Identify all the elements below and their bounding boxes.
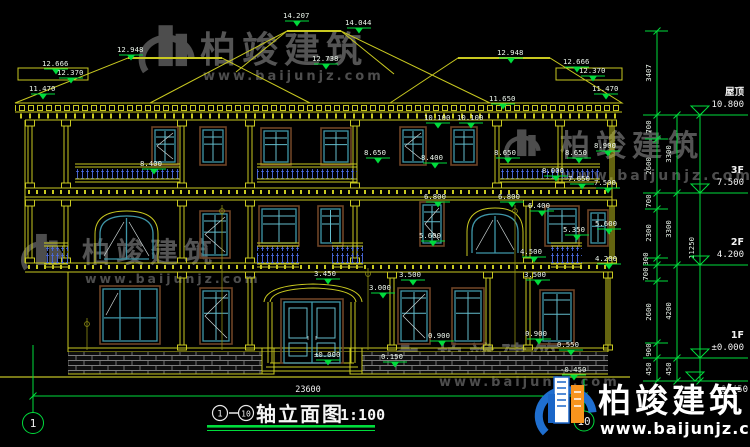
floor-level: 屋顶10.800 bbox=[643, 87, 748, 115]
svg-text:12.738: 12.738 bbox=[312, 54, 338, 63]
svg-text:8.650: 8.650 bbox=[565, 148, 587, 157]
svg-text:11.470: 11.470 bbox=[592, 84, 618, 93]
svg-text:±0.000: ±0.000 bbox=[314, 350, 340, 359]
balustrade bbox=[75, 164, 180, 182]
chain-dim: 450 bbox=[644, 362, 653, 375]
balustrade bbox=[44, 243, 68, 267]
downpipe bbox=[85, 318, 90, 350]
floor-name: 2F bbox=[731, 237, 744, 248]
chain-dim: 2600 bbox=[644, 303, 653, 321]
chain-dim: 450 bbox=[664, 362, 673, 375]
svg-text:12.948: 12.948 bbox=[497, 48, 523, 57]
svg-text:3.000: 3.000 bbox=[369, 283, 391, 292]
balustrade bbox=[257, 164, 357, 182]
svg-text:7.650: 7.650 bbox=[568, 174, 590, 183]
elevation-mark: 5.350 bbox=[563, 225, 589, 241]
svg-text:12.948: 12.948 bbox=[117, 45, 143, 54]
balustrade bbox=[257, 243, 299, 267]
svg-text:14.044: 14.044 bbox=[345, 18, 372, 27]
svg-text:10.100: 10.100 bbox=[424, 113, 450, 122]
total-width-dim: 23600 bbox=[295, 385, 321, 395]
elevation-mark: 10.100 bbox=[424, 113, 450, 129]
entrance bbox=[264, 284, 362, 363]
drawing-title: 1 10 轴立面图 1:100 bbox=[207, 402, 385, 431]
svg-text:6.800: 6.800 bbox=[424, 192, 446, 201]
svg-text:8.900: 8.900 bbox=[594, 141, 616, 150]
window bbox=[452, 288, 484, 344]
window bbox=[318, 206, 343, 246]
svg-text:8.400: 8.400 bbox=[140, 159, 162, 168]
svg-text:0.900: 0.900 bbox=[525, 329, 547, 338]
window bbox=[200, 127, 226, 165]
elevation-mark: 8.400 bbox=[421, 153, 447, 169]
window bbox=[200, 288, 232, 344]
axis-bubble-1: 1 bbox=[23, 413, 44, 434]
column bbox=[246, 120, 255, 188]
chain-dim: 2300 bbox=[644, 224, 653, 242]
column bbox=[246, 200, 255, 263]
elevation-mark: 12.948 bbox=[497, 48, 523, 64]
chain-dim: 700 bbox=[644, 194, 653, 207]
elevation-mark: 3.000 bbox=[369, 283, 395, 299]
svg-text:4.500: 4.500 bbox=[520, 247, 542, 256]
logo-brand-text: 柏竣建筑 bbox=[598, 381, 746, 420]
svg-text:12.666: 12.666 bbox=[563, 57, 589, 66]
watermark-brand: 柏竣建筑 bbox=[82, 236, 218, 269]
column bbox=[62, 120, 71, 188]
balustrade bbox=[332, 243, 363, 267]
svg-text:11.470: 11.470 bbox=[29, 84, 55, 93]
svg-text:12.666: 12.666 bbox=[42, 59, 68, 68]
watermark-layer: 柏竣建筑www.baijunjz.com柏竣建筑www.baijunjz.com… bbox=[24, 26, 750, 390]
elevation-mark: 5.600 bbox=[595, 219, 621, 235]
elevation-mark: 11.470 bbox=[29, 84, 55, 100]
eave-dentils bbox=[15, 104, 622, 112]
watermark-logo-icon bbox=[142, 26, 191, 72]
window bbox=[261, 128, 291, 165]
floor-level: 1F±0.000 bbox=[643, 330, 748, 358]
svg-text:6.800: 6.800 bbox=[498, 192, 520, 201]
svg-text:3.450: 3.450 bbox=[314, 269, 336, 278]
svg-text:8.000: 8.000 bbox=[542, 166, 564, 175]
elevation-mark: 4.200 bbox=[595, 254, 621, 270]
floor-level-value: ±0.000 bbox=[711, 343, 744, 353]
cornice-band-2 bbox=[25, 188, 612, 200]
svg-text:5.350: 5.350 bbox=[563, 225, 585, 234]
svg-text:7.500: 7.500 bbox=[594, 178, 616, 187]
elevation-marks-layer: 14.20714.04412.73812.94812.66612.37011.4… bbox=[29, 11, 621, 381]
watermark-brand: 柏竣建筑 bbox=[200, 30, 368, 71]
chain-dim: 4200 bbox=[664, 302, 673, 320]
svg-text:1: 1 bbox=[30, 417, 37, 430]
watermark-url: www.baijunjz.com bbox=[203, 69, 384, 84]
chain-dim: 3300 bbox=[664, 220, 673, 238]
svg-text:8.650: 8.650 bbox=[494, 148, 516, 157]
svg-text:6.400: 6.400 bbox=[528, 201, 550, 210]
chain-dim: 300 bbox=[641, 252, 650, 265]
elevation-mark: 11.470 bbox=[592, 84, 618, 100]
chain-dim: 700 bbox=[641, 267, 650, 280]
facade-elements bbox=[26, 120, 617, 350]
title-scale: 1:100 bbox=[340, 406, 385, 424]
window bbox=[321, 128, 351, 165]
svg-text:-0.450: -0.450 bbox=[560, 365, 586, 374]
svg-text:3.500: 3.500 bbox=[524, 270, 546, 279]
svg-text:5.600: 5.600 bbox=[419, 231, 441, 240]
floor-level-value: 7.500 bbox=[717, 178, 744, 188]
svg-text:4.200: 4.200 bbox=[595, 254, 617, 263]
column bbox=[26, 120, 35, 188]
watermark-url: www.baijunjz.com bbox=[85, 271, 261, 286]
downpipe bbox=[513, 205, 518, 350]
elevation-mark: 12.370 bbox=[57, 68, 83, 84]
balustrade bbox=[551, 243, 582, 267]
window bbox=[451, 127, 477, 165]
svg-text:3.500: 3.500 bbox=[399, 270, 421, 279]
floor-level-value: 10.800 bbox=[711, 100, 744, 110]
svg-text:0.900: 0.900 bbox=[428, 331, 450, 340]
title-text: 轴立面图 bbox=[256, 402, 344, 426]
window bbox=[259, 206, 299, 246]
svg-text:10.100: 10.100 bbox=[457, 113, 483, 122]
title-axis-end: 10 bbox=[241, 410, 251, 419]
elevation-mark: 8.650 bbox=[364, 148, 390, 164]
elevation-mark: 3.450 bbox=[314, 269, 340, 285]
window bbox=[588, 210, 608, 246]
chain-dim: 900 bbox=[644, 343, 653, 356]
svg-text:0.550: 0.550 bbox=[557, 340, 579, 349]
chain-dim: 3407 bbox=[644, 64, 653, 82]
svg-text:8.650: 8.650 bbox=[364, 148, 386, 157]
elevation-mark: 10.100 bbox=[457, 113, 483, 129]
chain-dim: 700 bbox=[644, 120, 653, 133]
svg-text:12.370: 12.370 bbox=[57, 68, 83, 77]
column bbox=[484, 272, 493, 350]
brand-logo: 柏竣建筑 www.baijunjz.com bbox=[534, 377, 750, 438]
elevation-mark: 14.207 bbox=[283, 11, 309, 27]
svg-text:5.600: 5.600 bbox=[595, 219, 617, 228]
elevation-mark: 8.650 bbox=[494, 148, 520, 164]
svg-text:12.370: 12.370 bbox=[579, 66, 605, 75]
floor-level-value: 4.200 bbox=[717, 250, 744, 260]
floor-name: 屋顶 bbox=[725, 87, 745, 98]
elevation-drawing: 柏竣建筑www.baijunjz.com柏竣建筑www.baijunjz.com… bbox=[0, 0, 750, 447]
floor-name: 3F bbox=[731, 165, 744, 176]
floor-name: 1F bbox=[731, 330, 744, 341]
chain-dim: 2600 bbox=[644, 157, 653, 175]
svg-text:11.650: 11.650 bbox=[489, 94, 515, 103]
dimension-chains: 3407700260070023003007002600900450330033… bbox=[641, 28, 704, 385]
column bbox=[524, 272, 533, 350]
svg-text:14.207: 14.207 bbox=[283, 11, 309, 20]
svg-text:8.400: 8.400 bbox=[421, 153, 443, 162]
svg-text:0.150: 0.150 bbox=[381, 352, 403, 361]
window bbox=[398, 288, 430, 344]
chain-dim: 3300 bbox=[664, 145, 673, 163]
logo-url-text: www.baijunjz.com bbox=[600, 419, 750, 438]
window bbox=[100, 286, 160, 344]
title-axis-start: 1 bbox=[217, 410, 222, 420]
downpipe bbox=[366, 268, 371, 350]
